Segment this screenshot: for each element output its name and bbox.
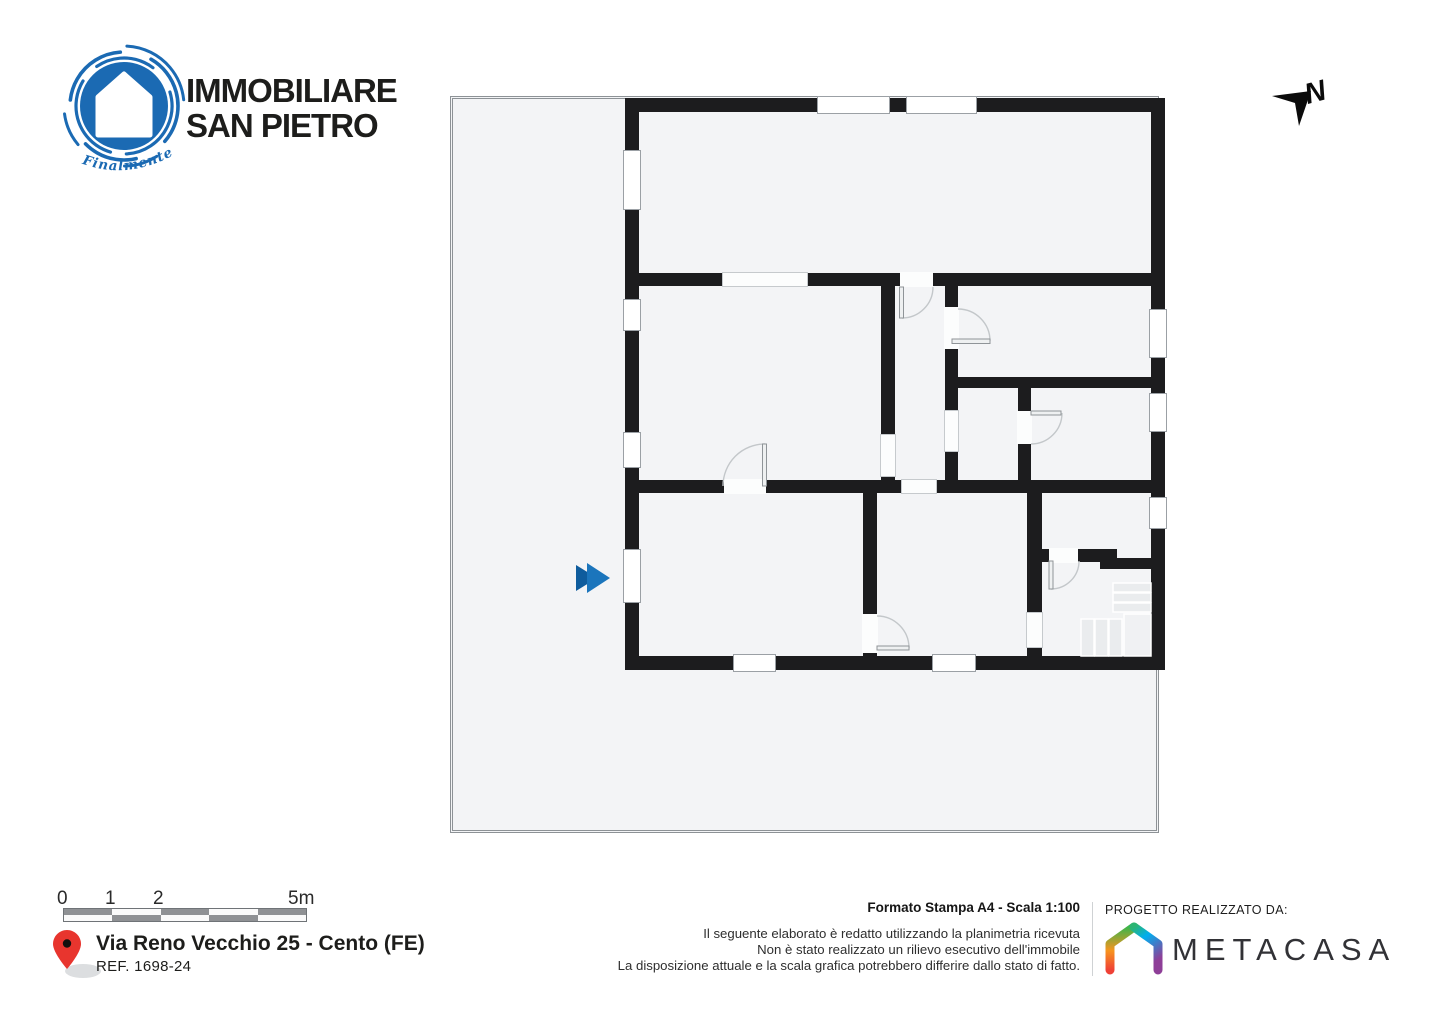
window-opening [733,654,776,672]
print-format-scale: Formato Stampa A4 - Scala 1:100 [867,900,1080,915]
scale-label-2: 2 [153,888,164,910]
disclaimer-line-3: La disposizione attuale e la scala grafi… [618,958,1080,974]
wall-segment [945,273,958,493]
window-opening [623,150,641,210]
disclaimer-line-2: Non è stato realizzato un rilievo esecut… [618,942,1080,958]
credits-heading: PROGETTO REALIZZATO DA: [1105,903,1288,917]
wall-segment [945,377,1165,388]
wall-segment [625,98,1165,112]
door-opening [724,479,766,494]
door-opening [1049,548,1078,563]
scale-bar [63,908,307,922]
window-opening [932,654,976,672]
entrance-door-opening [623,549,641,603]
print-disclaimer: Il seguente elaborato è redatto utilizza… [618,926,1080,974]
address-reference: REF. 1698-24 [96,958,191,975]
scale-bar-labels: 0 1 2 5m [0,888,340,910]
north-arrow-icon: N [1270,58,1342,140]
wall-segment [625,656,1165,670]
window-opening [817,96,890,114]
interior-opening [944,410,959,452]
metacasa-door-notch [1124,959,1138,975]
door-opening [1017,411,1032,444]
brand-emblem-icon: Finalmente a Casa [60,40,190,185]
compass-pointer [1272,91,1311,126]
credits-brand-name: METACASA [1172,932,1396,968]
scale-label-5m: 5m [288,888,314,910]
footer-divider [1092,902,1093,976]
window-opening [1149,497,1167,529]
window-opening [906,96,977,114]
brand-wordmark: IMMOBILIARE SAN PIETRO [186,74,397,144]
interior-opening [1026,612,1043,648]
door-opening [862,614,878,653]
door-opening [944,307,959,349]
lot-boundary [450,96,1159,833]
address-street: Via Reno Vecchio 25 - Cento (FE) [96,932,425,956]
interior-opening [901,479,937,494]
window-opening [623,432,641,468]
interior-opening [880,434,896,477]
wall-segment [1112,558,1151,569]
window-opening [1149,393,1167,432]
interior-opening [722,272,808,287]
window-opening [1149,309,1167,358]
wall-segment [625,273,1165,286]
door-opening [900,272,933,287]
entrance-chevron-icon [576,562,610,594]
scale-label-1: 1 [105,888,116,910]
brand-name-line2: SAN PIETRO [186,109,397,144]
brand-name-line1: IMMOBILIARE [186,74,397,109]
disclaimer-line-1: Il seguente elaborato è redatto utilizza… [618,926,1080,942]
scale-label-0: 0 [57,888,68,910]
metacasa-house-icon [1104,921,1164,977]
wall-segment [625,480,1165,493]
window-opening [623,299,641,331]
